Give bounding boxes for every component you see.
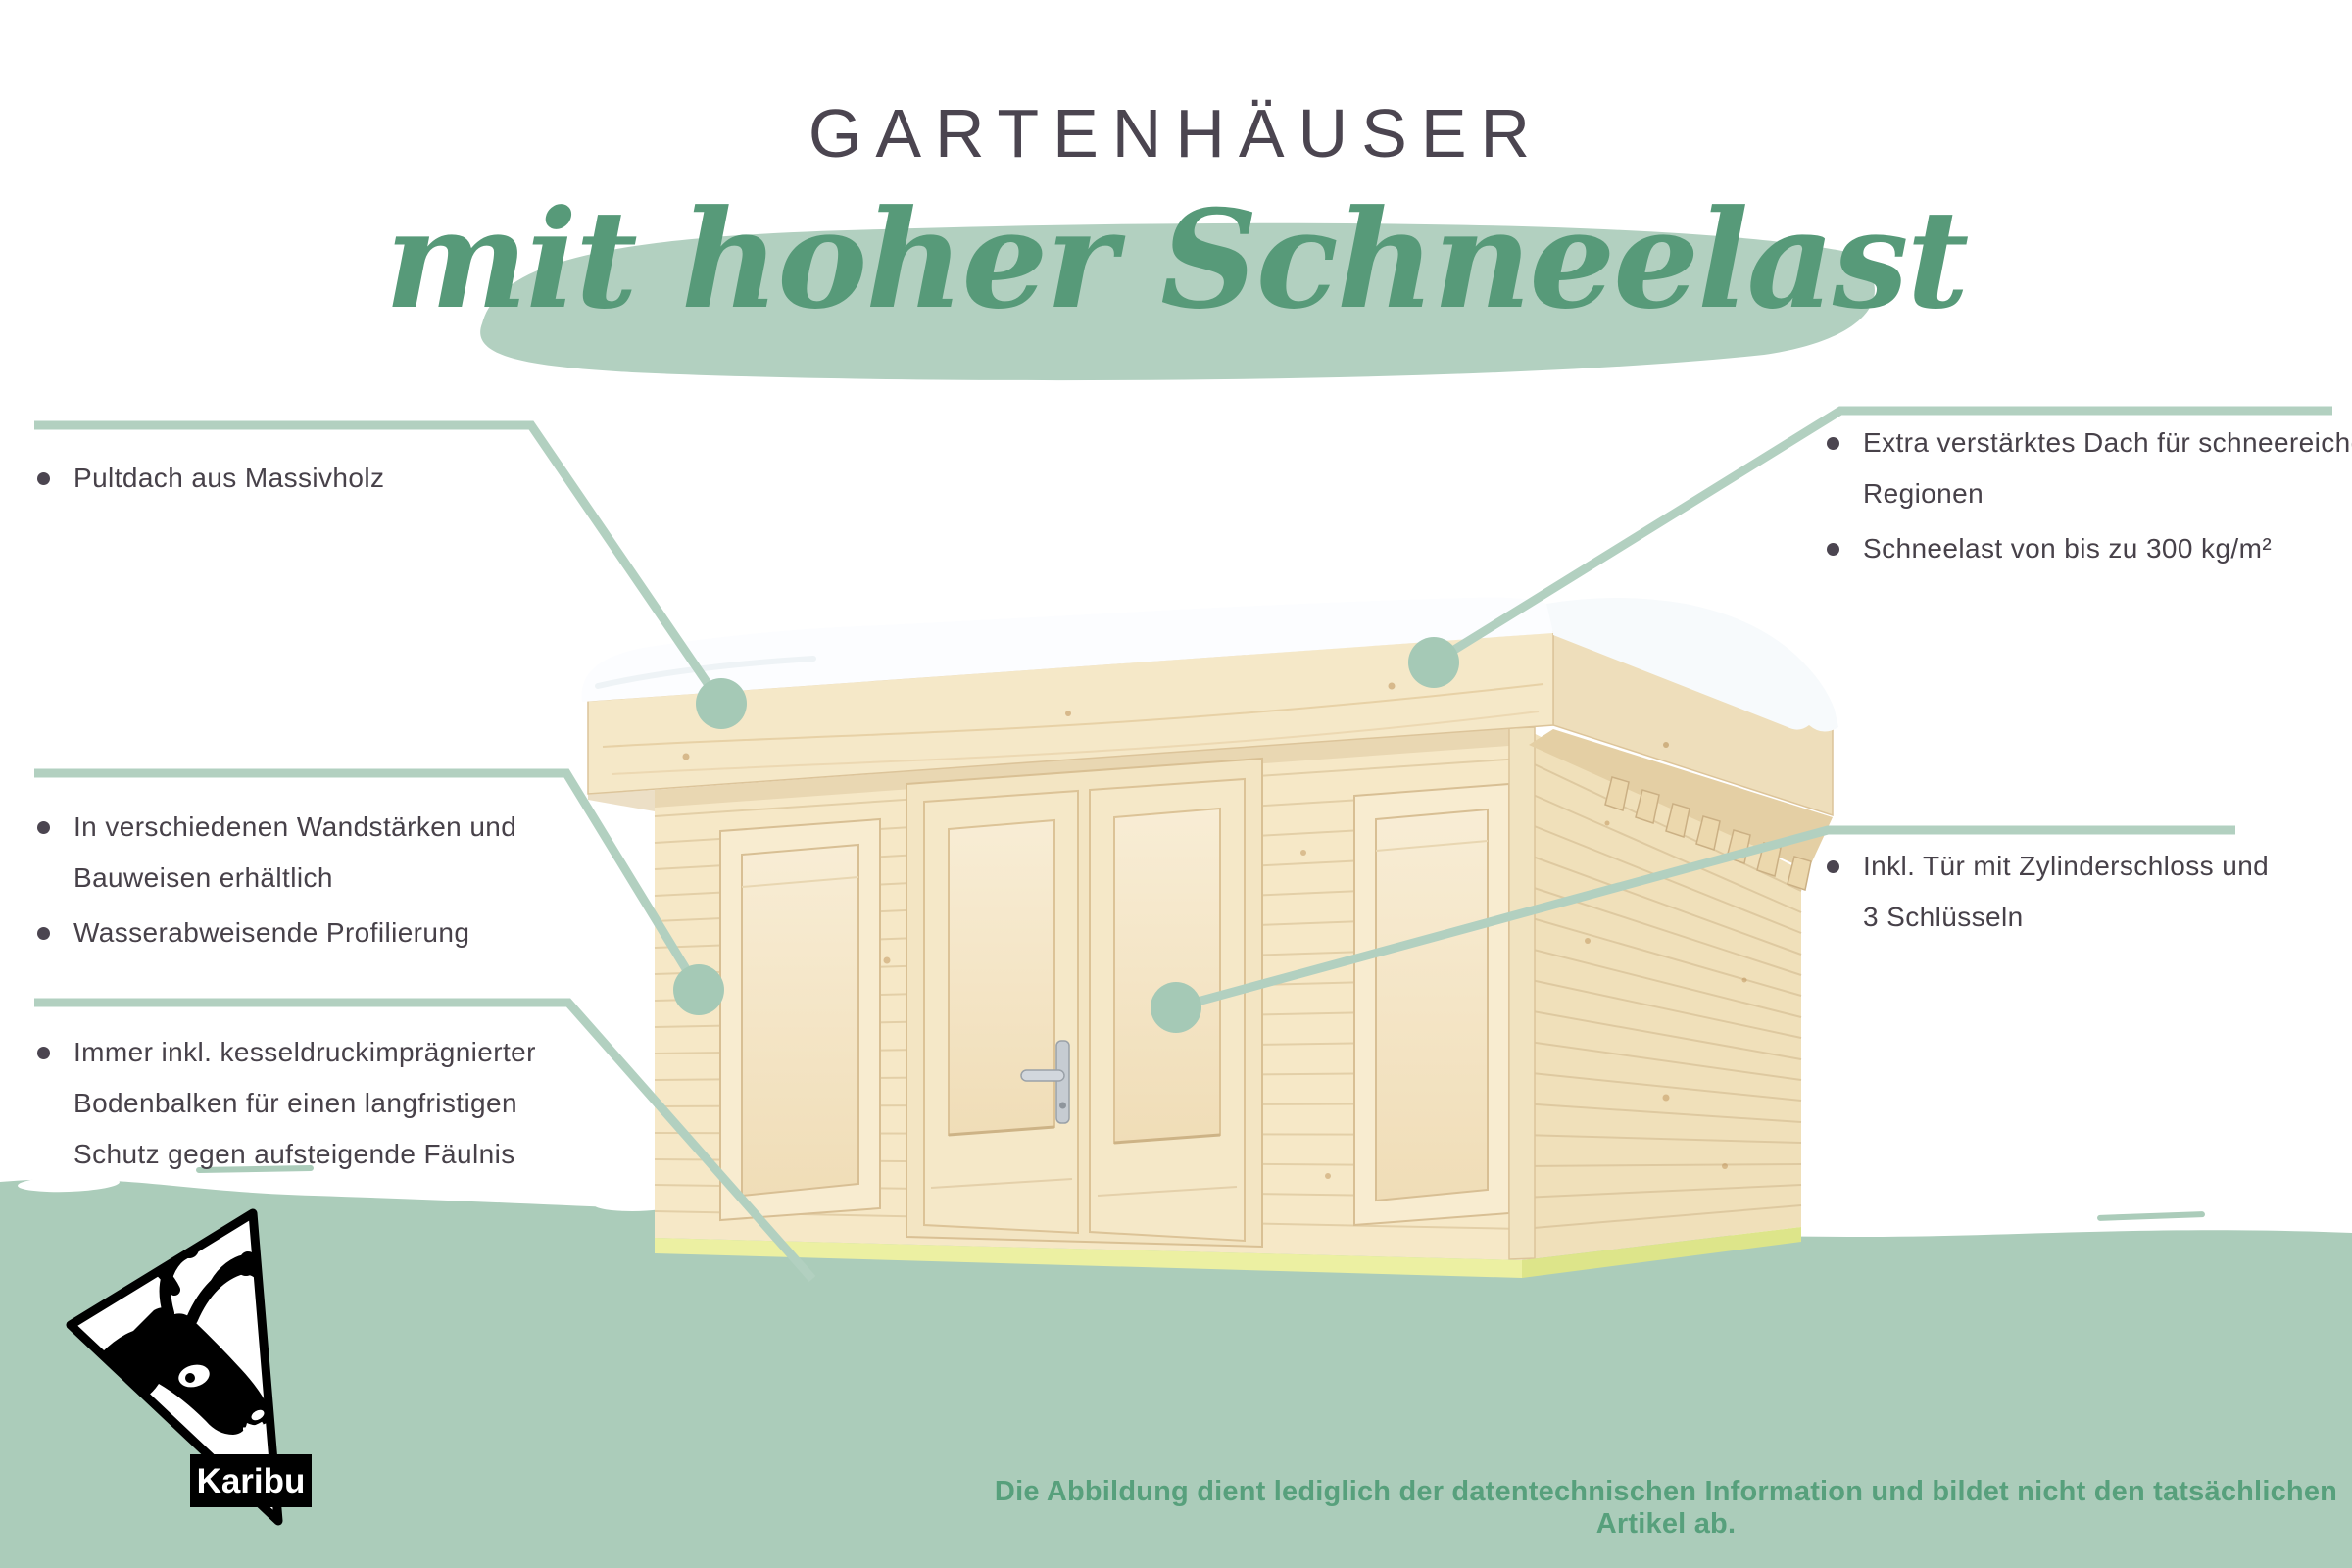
callout-dot-wall xyxy=(673,964,724,1015)
callout-dot-roof-right xyxy=(1408,637,1459,688)
feature-line: Extra verstärktes Dach für schneereiche xyxy=(1863,417,2344,468)
feature-line: In verschiedenen Wandstärken und xyxy=(73,802,516,853)
feature-line: Bauweisen erhältlich xyxy=(73,853,516,904)
logo-wordmark: Karibu xyxy=(197,1462,306,1500)
bullet-dot xyxy=(37,821,50,834)
feature-item: Schneelast von bis zu 300 kg/m² xyxy=(1825,523,2344,574)
bullet-dot xyxy=(37,472,50,485)
feature-line: Pultdach aus Massivholz xyxy=(73,453,384,504)
feature-item: Extra verstärktes Dach für schneereiche … xyxy=(1825,417,2344,519)
left-window xyxy=(720,819,880,1220)
door-leaf-left xyxy=(924,791,1078,1233)
callout-left-top: Pultdach aus Massivholz xyxy=(35,453,584,504)
callout-right-top: Extra verstärktes Dach für schneereiche … xyxy=(1825,417,2344,574)
bullet-dot xyxy=(37,1047,50,1059)
bullet-dot xyxy=(1827,543,1839,556)
page-title: GARTENHÄUSER xyxy=(0,94,2352,172)
corner-post xyxy=(1509,727,1535,1259)
feature-item: Wasserabweisende Profilierung xyxy=(35,907,604,958)
garden-house-illustration xyxy=(582,598,1838,1278)
feature-line: Schutz gegen aufsteigende Fäulnis xyxy=(73,1129,536,1180)
feature-item: Immer inkl. kesseldruckimprägnierter Bod… xyxy=(35,1027,604,1180)
feature-line: Immer inkl. kesseldruckimprägnierter xyxy=(73,1027,536,1078)
callout-left-middle: In verschiedenen Wandstärken und Bauweis… xyxy=(35,802,604,958)
bullet-dot xyxy=(1827,860,1839,873)
right-window xyxy=(1354,784,1509,1225)
disclaimer-text: Die Abbildung dient lediglich der datent… xyxy=(980,1476,2352,1541)
feature-line: Wasserabweisende Profilierung xyxy=(73,907,469,958)
feature-line: Bodenbalken für einen langfristigen xyxy=(73,1078,536,1129)
feature-line: Regionen xyxy=(1863,468,2344,519)
feature-item: In verschiedenen Wandstärken und Bauweis… xyxy=(35,802,604,904)
callout-dot-door xyxy=(1151,982,1201,1033)
bullet-dot xyxy=(37,927,50,940)
page-subtitle: mit hoher Schneelast xyxy=(0,192,2352,327)
feature-item: Inkl. Tür mit Zylinderschloss und 3 Schl… xyxy=(1825,841,2334,943)
callout-right-middle: Inkl. Tür mit Zylinderschloss und 3 Schl… xyxy=(1825,841,2334,943)
feature-line: Inkl. Tür mit Zylinderschloss und xyxy=(1863,841,2269,892)
feature-line: 3 Schlüsseln xyxy=(1863,892,2269,943)
feature-item: Pultdach aus Massivholz xyxy=(35,453,584,504)
callout-dot-roof-left xyxy=(696,678,747,729)
feature-line: Schneelast von bis zu 300 kg/m² xyxy=(1863,523,2272,574)
callout-left-bottom: Immer inkl. kesseldruckimprägnierter Bod… xyxy=(35,1027,604,1180)
bullet-dot xyxy=(1827,437,1839,450)
